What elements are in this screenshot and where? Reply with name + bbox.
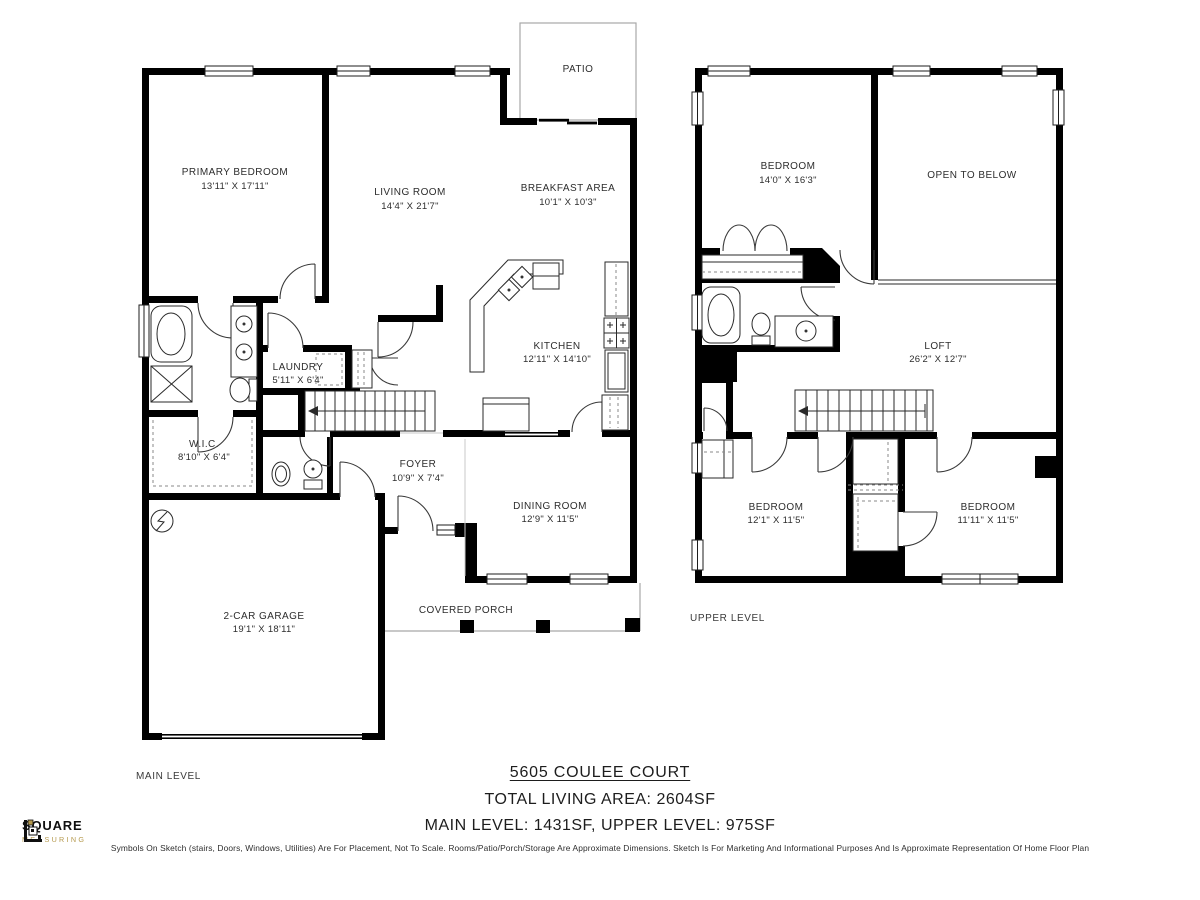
toilet-icon [230,378,257,402]
garage-door [162,734,362,736]
room-label-dining: DINING ROOM [513,501,587,512]
room-dims-bedroom2: 12'1" X 11'5" [748,515,805,526]
main-level-plan: PRIMARY BEDROOM 13'11" X 17'11" LIVING R… [139,23,640,740]
window [942,574,1018,584]
room-label-laundry: LAUNDRY [273,362,324,373]
door-arc [280,264,315,299]
window [692,443,703,473]
stairs-upper [795,390,933,431]
room-label-patio: PATIO [563,64,594,75]
door-arc [801,287,835,320]
window [139,305,149,357]
closet-shelf [702,255,803,279]
patio-sliding-door [567,122,597,125]
door-arc [378,322,413,357]
room-label-kitchen: KITCHEN [533,341,580,352]
double-vanity-icon [231,306,257,377]
upper-level-caption: UPPER LEVEL [690,613,765,624]
range-icon [604,318,629,348]
window [692,295,703,330]
bathtub-icon [702,287,740,343]
room-label-foyer: FOYER [400,459,437,470]
electrical-panel-icon [151,510,173,532]
window [893,66,930,76]
room-label-open-to-below: OPEN TO BELOW [927,170,1017,181]
door-arc [370,358,398,385]
window [692,540,703,570]
kitchen-right-counter [605,262,628,316]
door-arc [752,437,787,472]
room-label-bedroom1: BEDROOM [761,161,816,172]
refrigerator-icon [605,350,628,392]
measuring-tool-icon [22,819,44,843]
railing [878,280,1056,284]
window [570,574,608,584]
room-dims-primary-bedroom: 13'11" X 17'11" [201,181,268,192]
window [205,66,253,76]
vanity-sink-icon [775,316,833,347]
closet-shelving [848,439,903,551]
total-living-area: TOTAL LIVING AREA: 2604SF [0,791,1200,809]
door-arc [840,250,874,284]
room-dims-bedroom1: 14'0" X 16'3" [759,175,817,186]
room-dims-dining: 12'9" X 11'5" [522,514,579,525]
door-arc [903,512,937,546]
window [708,66,750,76]
room-label-garage: 2-CAR GARAGE [224,611,305,622]
window [455,66,490,76]
door-arc [198,303,233,338]
level-areas: MAIN LEVEL: 1431SF, UPPER LEVEL: 975SF [0,817,1200,835]
pantry-cabinet [602,395,628,430]
address-title: 5605 COULEE COURT [0,764,1200,782]
room-dims-kitchen: 12'11" X 14'10" [523,354,591,365]
shower-icon [151,366,192,402]
upper-level-plan: BEDROOM 14'0" X 16'3" OPEN TO BELOW LOFT… [692,66,1064,584]
kitchen-island [483,398,529,431]
room-dims-breakfast: 10'1" X 10'3" [539,197,597,208]
bathtub-icon [151,306,192,362]
door-arc [572,402,602,432]
disclaimer-text: Symbols On Sketch (stairs, Doors, Window… [0,843,1200,853]
window [487,574,527,584]
room-dims-loft: 26'2" X 12'7" [909,354,967,365]
door-arc [340,462,375,497]
room-label-primary-bedroom: PRIMARY BEDROOM [182,167,288,178]
stairs-main [305,391,435,431]
window [692,92,703,125]
porch-post [460,620,474,633]
patio-sliding-door [539,119,569,122]
bifold-closet-doors [723,225,787,251]
powder-toilet-icon [304,460,322,489]
room-dims-wic: 8'10" X 6'4" [178,452,230,463]
window [337,66,370,76]
room-dims-living-room: 14'4" X 21'7" [381,201,439,212]
room-dims-foyer: 10'9" X 7'4" [392,473,444,484]
room-label-bedroom2: BEDROOM [749,502,804,513]
window [1002,66,1037,76]
room-dims-garage: 19'1" X 18'11" [233,624,295,635]
door-arc [398,496,433,531]
room-label-porch: COVERED PORCH [419,605,513,616]
room-label-bedroom3: BEDROOM [961,502,1016,513]
toilet-icon [752,313,770,345]
room-label-wic: W.I.C. [189,439,219,450]
square-measuring-logo: SQUARE MEASURING [22,819,86,844]
bedroom-closet-box [702,440,733,478]
floor-plan-page: PRIMARY BEDROOM 13'11" X 17'11" LIVING R… [0,0,1200,900]
window [1053,90,1064,125]
porch-post [625,618,640,632]
door-arc [937,437,972,472]
laundry-cabinet [352,350,372,388]
room-dims-bedroom3: 11'11" X 11'5" [957,515,1018,526]
room-divider-line [400,433,465,576]
room-label-living-room: LIVING ROOM [374,187,446,198]
window [437,525,455,535]
powder-sink-icon [272,462,290,486]
door-arc [704,408,727,431]
porch-post [536,620,550,633]
room-label-breakfast: BREAKFAST AREA [521,183,615,194]
room-dims-laundry: 5'11" X 6'4" [272,375,323,386]
garage-door [162,737,362,739]
room-label-loft: LOFT [924,341,951,352]
door-arc [268,313,303,348]
